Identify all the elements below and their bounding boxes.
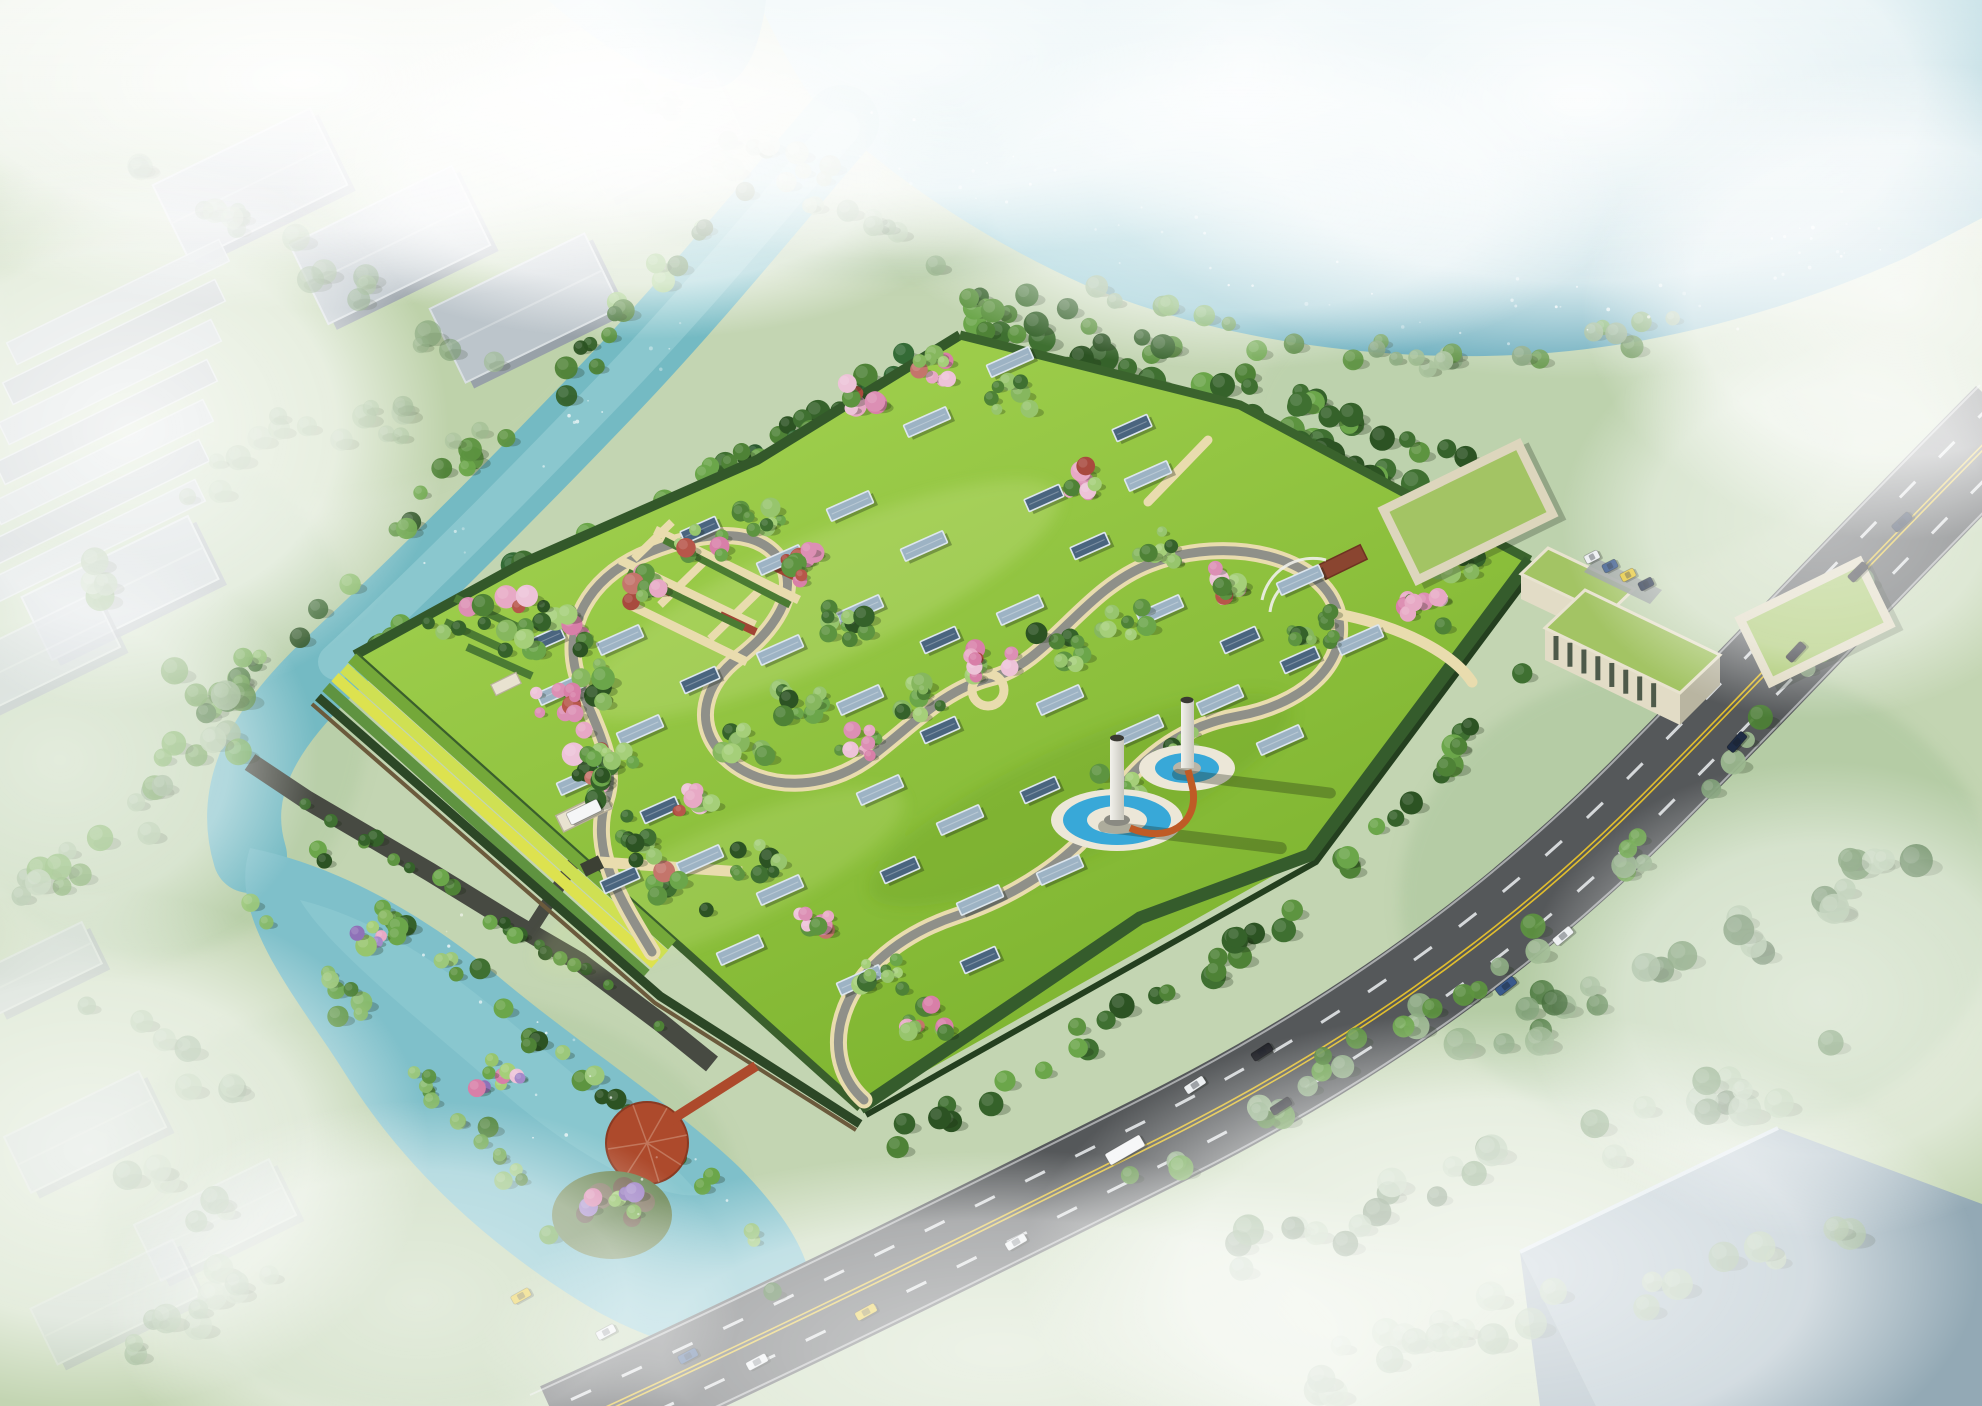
rendering-canvas [0, 0, 1982, 1406]
top-haze [0, 0, 1982, 280]
stack-cylinder-west [1110, 738, 1124, 820]
aerial-rendering [0, 0, 1982, 1406]
stack-cylinder-east [1181, 700, 1194, 768]
